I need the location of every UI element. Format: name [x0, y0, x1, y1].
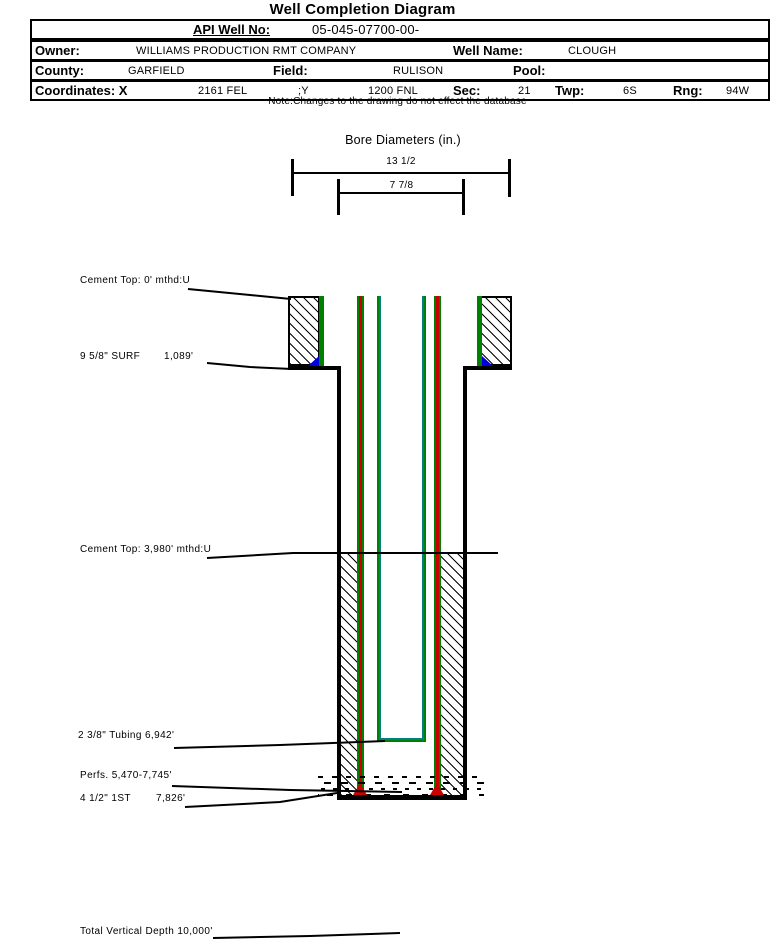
well-completion-report-page: Well Completion Diagram API Well No: 05-…: [0, 0, 775, 944]
production-shoe-left: [353, 783, 367, 795]
bore-diameter-outer-label: 13 1/2: [292, 156, 510, 167]
api-well-no-value: 05-045-07700-00-: [312, 22, 419, 37]
surface-casing-left: [319, 296, 324, 366]
perforation-marks: [318, 776, 484, 778]
bore-diameter-inner-tick-right: [462, 179, 465, 215]
table-row-county: County: GARFIELD Field: RULISON Pool:: [32, 62, 768, 82]
borehole-wall-right: [463, 366, 467, 800]
bore-diameter-outer-tick-left: [291, 159, 294, 196]
bore-diameter-inner-line: [338, 192, 465, 194]
perforation-marks: [318, 794, 484, 796]
api-well-no-label: API Well No:: [193, 22, 270, 37]
pool-label: Pool:: [513, 63, 546, 78]
production-casing-left: [357, 296, 364, 795]
surface-shoe-right: [482, 356, 493, 366]
leader-production-casing: [185, 793, 337, 807]
cement-top-surface-label: Cement Top: 0' mthd:U: [80, 275, 190, 286]
leader-cement-top-surface: [188, 289, 291, 299]
perfs-label: Perfs. 5,470-7,745': [80, 770, 172, 781]
production-casing-label: 4 1/2" 1ST: [80, 793, 131, 804]
production-cement-left: [341, 554, 357, 795]
county-value: GARFIELD: [128, 65, 185, 77]
leader-total-vertical-depth: [213, 933, 400, 938]
bore-diameter-outer-tick-right: [508, 159, 511, 197]
county-label: County:: [35, 63, 84, 78]
well-name-value: CLOUGH: [568, 45, 616, 57]
borehole-wall-left: [337, 366, 341, 800]
production-cement-right: [441, 554, 463, 795]
well-name-label: Well Name:: [453, 43, 523, 58]
surface-casing-depth: 1,089': [164, 351, 193, 362]
surface-casing-label: 9 5/8" SURF: [80, 351, 140, 362]
cement-top-production-label: Cement Top: 3,980' mthd:U: [80, 544, 211, 555]
leader-surface-casing: [207, 363, 292, 369]
bore-diameter-inner-tick-left: [337, 179, 340, 215]
tubing-label: 2 3/8" Tubing 6,942': [78, 730, 174, 741]
borehole-step-left: [288, 366, 341, 370]
bore-diameters-title: Bore Diameters (in.): [0, 133, 775, 147]
borehole-step-right: [463, 366, 512, 370]
well-info-table: API Well No: 05-045-07700-00- Owner: WIL…: [30, 19, 770, 101]
perforation-marks: [318, 782, 484, 784]
bore-diameter-outer-line: [292, 172, 510, 174]
note-text: Note:Changes to the drawing do not effec…: [0, 96, 775, 107]
perforation-zone: [318, 774, 484, 800]
production-casing-right: [434, 296, 441, 795]
production-shoe-right: [430, 783, 444, 795]
production-casing-left-core: [359, 296, 362, 795]
surface-shoe-left: [308, 356, 319, 366]
total-vertical-depth-label: Total Vertical Depth 10,000': [80, 926, 213, 937]
production-casing-right-core: [436, 296, 439, 795]
table-row-api: API Well No: 05-045-07700-00-: [32, 21, 768, 42]
bore-diameter-inner-label: 7 7/8: [338, 180, 465, 191]
table-row-owner: Owner: WILLIAMS PRODUCTION RMT COMPANY W…: [32, 42, 768, 62]
field-value: RULISON: [393, 65, 443, 77]
owner-label: Owner:: [35, 43, 80, 58]
production-casing-depth: 7,826': [156, 793, 185, 804]
tubing-string: [377, 296, 426, 742]
field-label: Field:: [273, 63, 308, 78]
page-title: Well Completion Diagram: [0, 1, 725, 18]
owner-value: WILLIAMS PRODUCTION RMT COMPANY: [136, 45, 356, 57]
perforation-marks: [318, 788, 484, 790]
tubing-inner-wall: [379, 296, 424, 740]
